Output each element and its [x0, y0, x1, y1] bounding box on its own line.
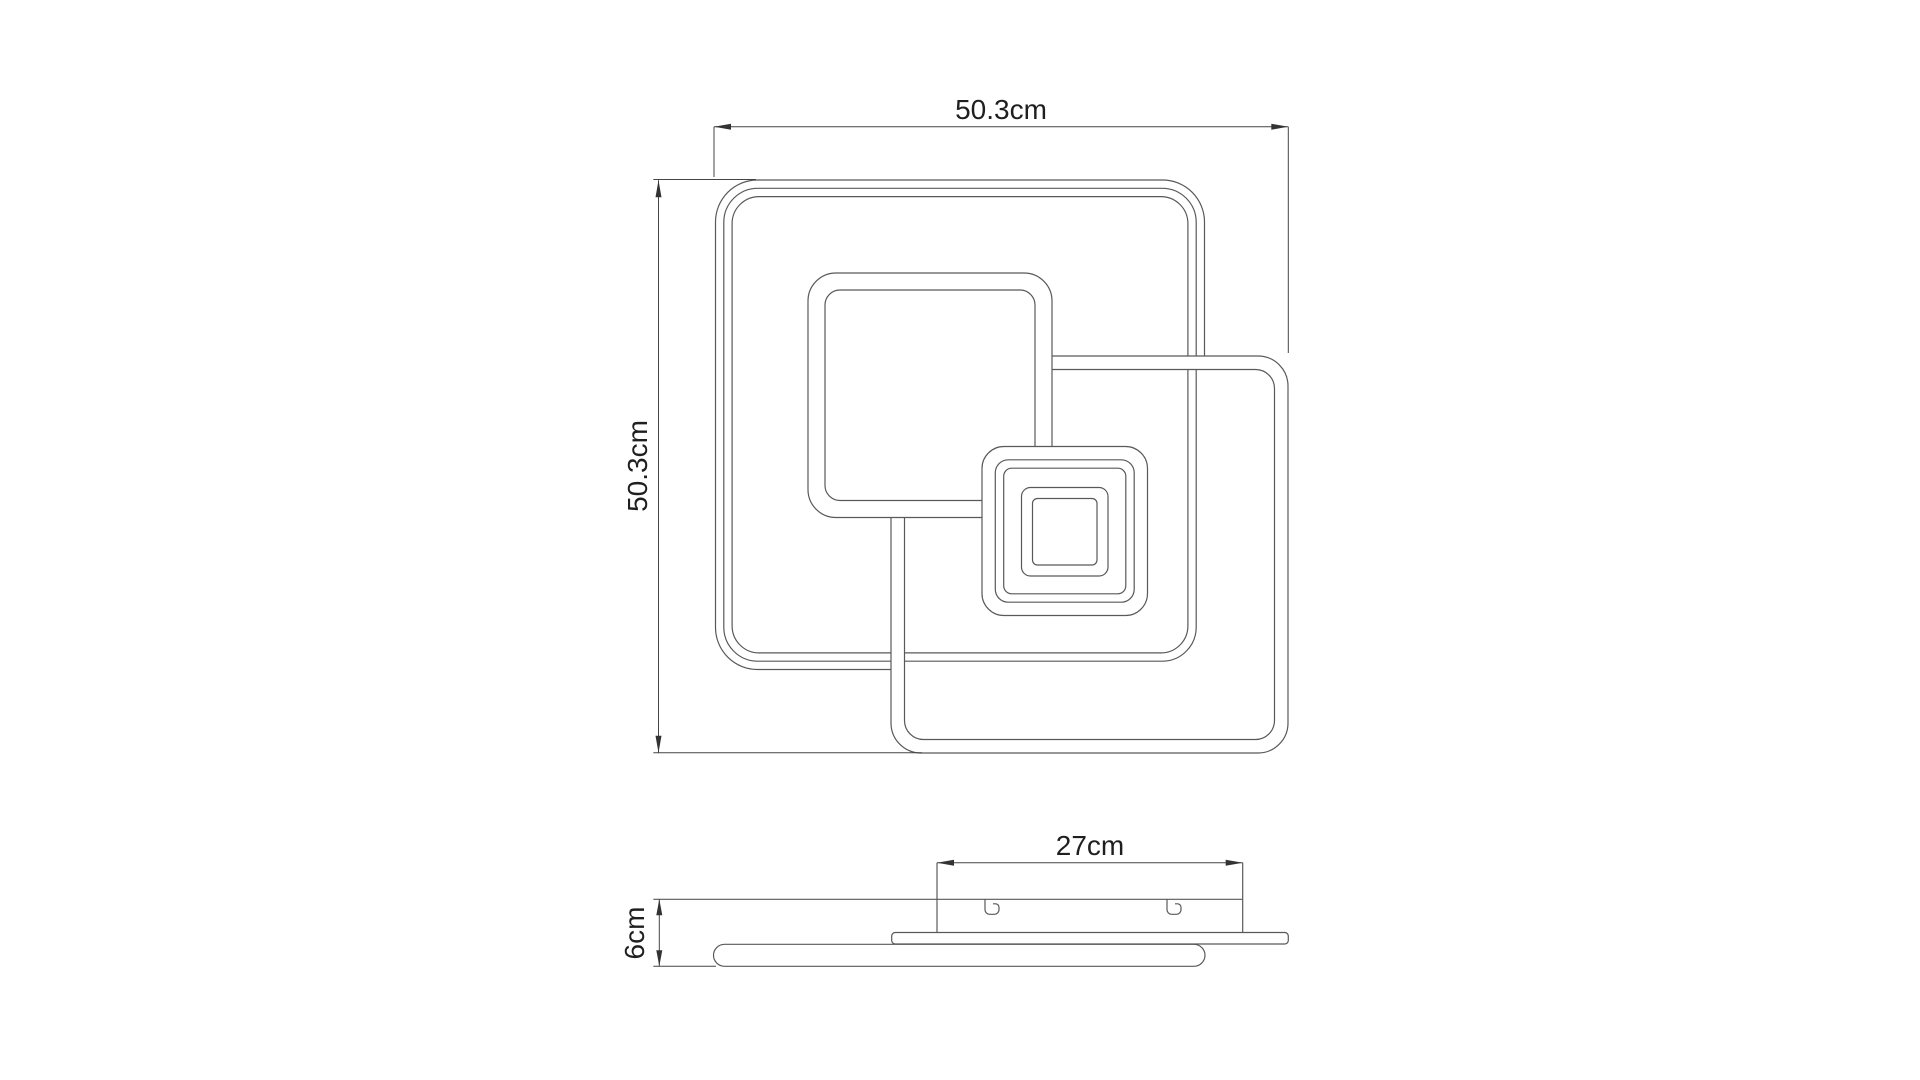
arrow-right-icon	[1226, 860, 1243, 866]
spring-clip-icon	[985, 899, 999, 914]
arrow-down-icon	[656, 950, 662, 966]
arrow-left-icon	[937, 860, 954, 866]
side-lamp-panel	[714, 944, 1206, 966]
top-view	[716, 180, 1289, 753]
side-upper-panel	[892, 933, 1289, 945]
top-width-label: 50.3cm	[955, 94, 1047, 125]
arrow-up-icon	[656, 180, 662, 197]
side-view: 27cm 6cm	[619, 830, 1288, 966]
arrow-right-icon	[1271, 124, 1288, 130]
arrow-left-icon	[714, 124, 731, 130]
spring-clip-icon	[1167, 899, 1181, 914]
top-height-label: 50.3cm	[622, 420, 653, 512]
small-center-square	[982, 447, 1148, 616]
arrow-down-icon	[656, 736, 662, 753]
arrow-up-icon	[656, 899, 662, 915]
side-height-label: 6cm	[619, 907, 650, 960]
dimension-side-height: 6cm	[619, 899, 716, 966]
side-mounting-bracket	[653, 863, 1242, 933]
bracket-width-label: 27cm	[1056, 830, 1124, 861]
dimension-bracket-width: 27cm	[937, 830, 1243, 866]
ceiling-lamp-dimension-drawing: 50.3cm 50.3cm 27cm	[0, 0, 1920, 1080]
